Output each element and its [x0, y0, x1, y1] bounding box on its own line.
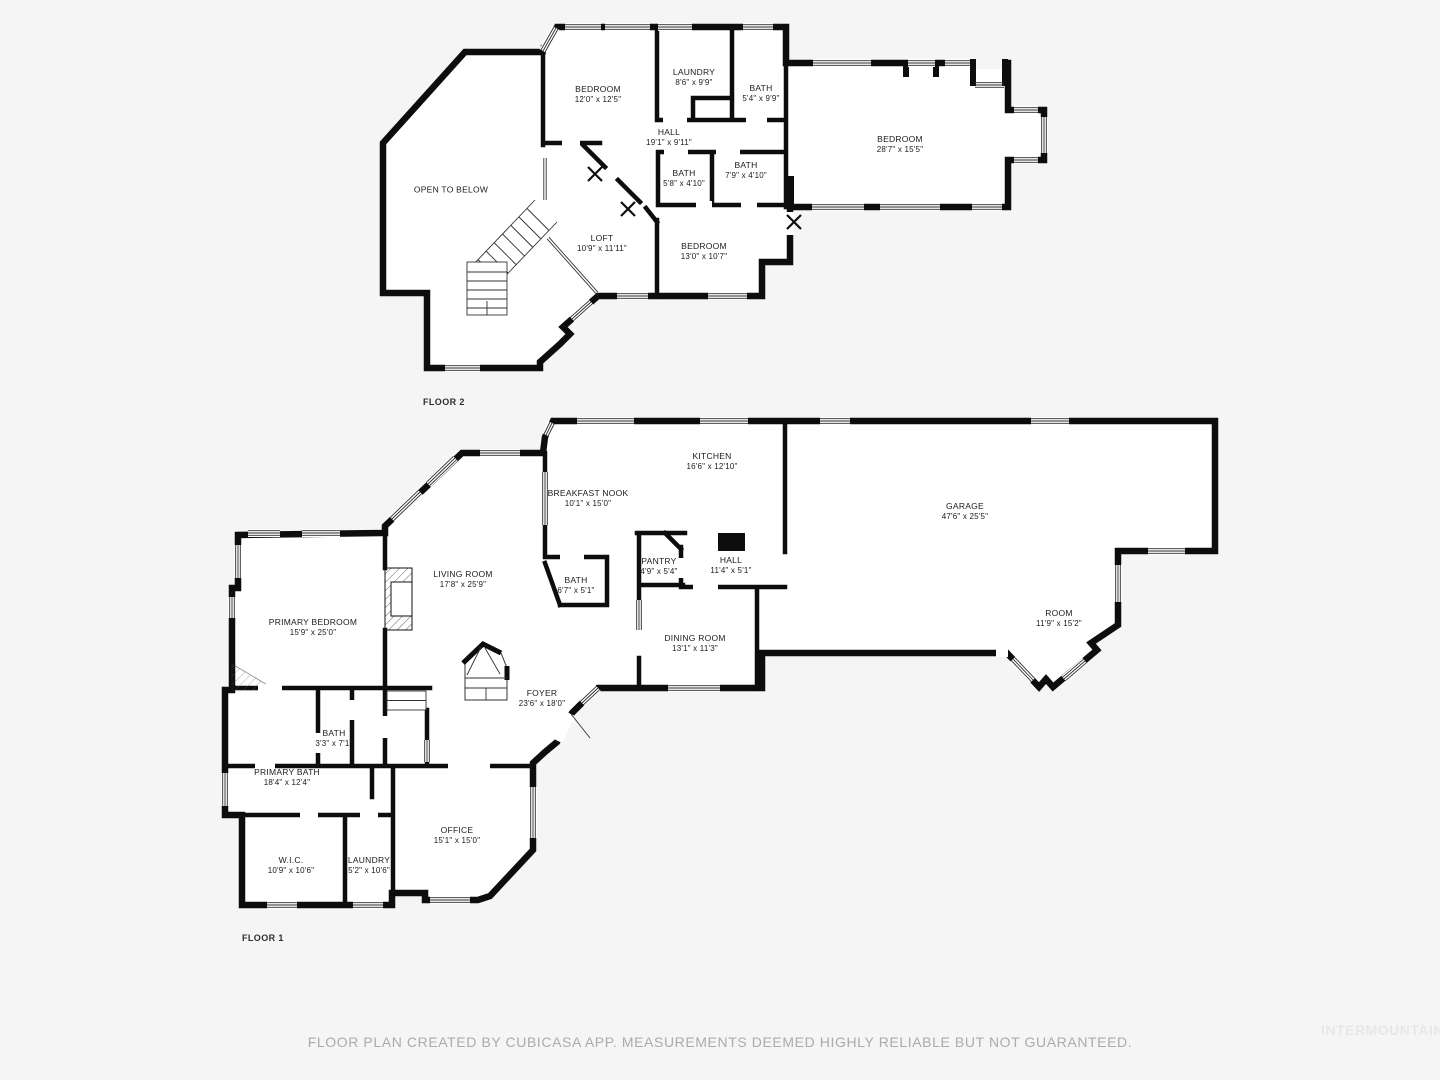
room-label: LAUNDRY5'2" x 10'6" [348, 855, 390, 877]
room-dims: 23'6" x 18'0" [519, 699, 565, 710]
room-name: LOFT [577, 233, 627, 244]
room-label: HALL11'4" x 5'1" [710, 555, 751, 577]
room-name: PRIMARY BEDROOM [269, 617, 357, 628]
room-name: BATH [742, 83, 779, 94]
floor-plan-canvas [0, 0, 1440, 1080]
room-dims: 6'7" x 5'1" [557, 586, 594, 597]
room-dims: 11'9" x 15'2" [1036, 619, 1082, 630]
floor2-title: FLOOR 2 [423, 397, 465, 407]
room-name: BEDROOM [681, 241, 727, 252]
room-name: LAUNDRY [673, 67, 715, 78]
room-dims: 28'7" x 15'5" [877, 145, 923, 156]
room-label: ROOM11'9" x 15'2" [1036, 608, 1082, 630]
room-label: LAUNDRY8'6" x 9'9" [673, 67, 715, 89]
room-label: HALL19'1" x 9'11" [646, 127, 692, 149]
room-dims: 3'3" x 7'1" [315, 739, 352, 750]
room-label: BATH3'3" x 7'1" [315, 728, 352, 750]
room-label: DINING ROOM13'1" x 11'3" [664, 633, 725, 655]
room-dims: 47'6" x 25'5" [942, 512, 988, 523]
room-name: FOYER [519, 688, 565, 699]
floor-plan-page: BEDROOM12'0" x 12'5" LAUNDRY8'6" x 9'9" … [0, 0, 1440, 1080]
room-dims: 13'1" x 11'3" [664, 644, 725, 655]
room-label: BEDROOM13'0" x 10'7" [681, 241, 727, 263]
room-label: BATH7'9" x 4'10" [725, 160, 767, 182]
wall-block [784, 176, 794, 207]
front-door-leaf [571, 714, 590, 738]
room-dims: 12'0" x 12'5" [575, 95, 621, 106]
room-name: OFFICE [434, 825, 480, 836]
room-dims: 7'9" x 4'10" [725, 171, 767, 182]
room-dims: 15'9" x 25'0" [269, 628, 357, 639]
floor1-interior [225, 421, 1215, 905]
room-name: KITCHEN [686, 451, 737, 462]
room-dims: 5'8" x 4'10" [663, 179, 705, 190]
wall-block [718, 533, 745, 551]
room-name: BREAKFAST NOOK [548, 488, 629, 499]
wall-recess [974, 57, 1005, 69]
room-dims: 10'1" x 15'0" [548, 499, 629, 510]
room-name: ROOM [1036, 608, 1082, 619]
room-name: OPEN TO BELOW [414, 184, 488, 195]
floor1-plan [223, 419, 1215, 908]
room-name: DINING ROOM [664, 633, 725, 644]
room-dims: 19'1" x 9'11" [646, 138, 692, 149]
floor1-title: FLOOR 1 [242, 933, 284, 943]
room-label: BEDROOM12'0" x 12'5" [575, 84, 621, 106]
room-dims: 5'2" x 10'6" [348, 866, 390, 877]
room-dims: 11'4" x 5'1" [710, 566, 751, 577]
room-label: BEDROOM28'7" x 15'5" [877, 134, 923, 156]
room-name: HALL [710, 555, 751, 566]
room-label: LOFT10'9" x 11'11" [577, 233, 627, 255]
room-label: LIVING ROOM17'8" x 25'9" [433, 569, 492, 591]
room-label: KITCHEN16'6" x 12'10" [686, 451, 737, 473]
room-dims: 15'1" x 15'0" [434, 836, 480, 847]
room-label: BATH5'8" x 4'10" [663, 168, 705, 190]
room-dims: 10'9" x 11'11" [577, 244, 627, 255]
room-label: W.I.C.10'9" x 10'6" [268, 855, 314, 877]
wall-stub [970, 59, 976, 86]
room-name: PRIMARY BATH [254, 767, 320, 778]
room-label: BREAKFAST NOOK10'1" x 15'0" [548, 488, 629, 510]
watermark-text: INTERMOUNTAIN [1321, 1022, 1440, 1038]
room-label: PANTRY4'9" x 5'4" [640, 556, 677, 578]
room-label: BATH5'4" x 9'9" [742, 83, 779, 105]
room-label: GARAGE47'6" x 25'5" [942, 501, 988, 523]
room-name: HALL [646, 127, 692, 138]
fireplace [385, 568, 412, 630]
room-dims: 4'9" x 5'4" [640, 567, 677, 578]
room-label: PRIMARY BEDROOM15'9" x 25'0" [269, 617, 357, 639]
room-name: LIVING ROOM [433, 569, 492, 580]
wall-stub [1002, 59, 1008, 86]
room-name: PANTRY [640, 556, 677, 567]
room-name: GARAGE [942, 501, 988, 512]
room-name: BATH [315, 728, 352, 739]
disclaimer-text: FLOOR PLAN CREATED BY CUBICASA APP. MEAS… [0, 1034, 1440, 1050]
room-dims: 16'6" x 12'10" [686, 462, 737, 473]
room-name: BATH [725, 160, 767, 171]
room-dims: 18'4" x 12'4" [254, 778, 320, 789]
room-name: BEDROOM [877, 134, 923, 145]
room-label: FOYER23'6" x 18'0" [519, 688, 565, 710]
room-dims: 17'8" x 25'9" [433, 580, 492, 591]
room-dims: 5'4" x 9'9" [742, 94, 779, 105]
room-dims: 13'0" x 10'7" [681, 252, 727, 263]
room-label: OFFICE15'1" x 15'0" [434, 825, 480, 847]
room-name: W.I.C. [268, 855, 314, 866]
room-label: PRIMARY BATH18'4" x 12'4" [254, 767, 320, 789]
room-label: OPEN TO BELOW [414, 184, 488, 195]
room-name: BATH [557, 575, 594, 586]
closet [387, 691, 426, 710]
room-name: LAUNDRY [348, 855, 390, 866]
room-dims: 8'6" x 9'9" [673, 78, 715, 89]
room-name: BEDROOM [575, 84, 621, 95]
room-name: BATH [663, 168, 705, 179]
room-dims: 10'9" x 10'6" [268, 866, 314, 877]
room-label: BATH6'7" x 5'1" [557, 575, 594, 597]
